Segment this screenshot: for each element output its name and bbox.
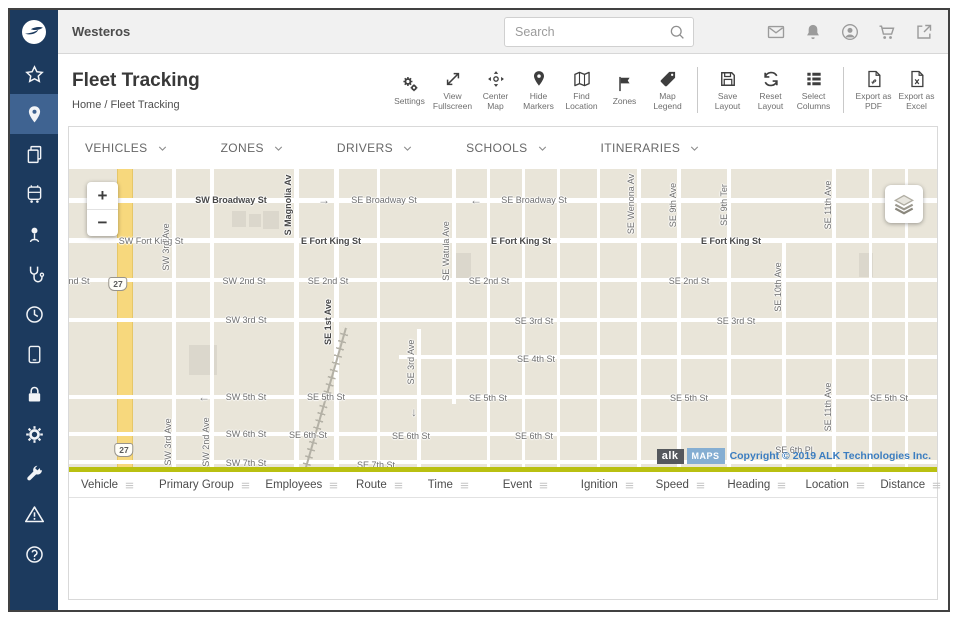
street-label: SE Wenona Av <box>626 174 636 234</box>
topbar: Westeros <box>58 10 948 54</box>
street-label: SE 3rd St <box>717 316 756 326</box>
tool-label: Zones <box>613 97 637 107</box>
street-label: SE 3rd St <box>515 316 554 326</box>
column-menu-icon <box>776 480 787 491</box>
column-menu-icon <box>328 480 339 491</box>
street-label: SE 3rd Ave <box>406 340 416 385</box>
route-shield: 27 <box>114 443 133 457</box>
map-street-horizontal <box>399 355 937 359</box>
column-header-time[interactable]: Time <box>416 479 491 491</box>
page-titles: Fleet Tracking Home / Fleet Tracking <box>72 70 200 111</box>
flag-icon <box>615 74 635 94</box>
tool-label: Map Legend <box>646 92 689 112</box>
account-button[interactable] <box>840 22 860 42</box>
column-menu-icon <box>538 480 549 491</box>
map-building <box>249 214 261 227</box>
column-header-label: Location <box>805 479 848 491</box>
street-label: SE 4th St <box>517 354 555 364</box>
sidebar-item-transit[interactable] <box>10 174 58 214</box>
tool-label: Center Map <box>474 92 517 112</box>
street-label: S Magnolia Av <box>283 175 293 236</box>
street-label: SW Fort King St <box>119 236 184 246</box>
filter-itineraries[interactable]: ITINERARIES <box>601 141 702 155</box>
column-menu-icon <box>393 480 404 491</box>
street-label: SE 6th St <box>515 431 553 441</box>
street-label: SE 11th Ave <box>823 181 833 230</box>
toolbar: SettingsView FullscreenCenter MapHide Ma… <box>388 67 938 113</box>
external-link-icon <box>914 22 934 42</box>
toolbar-divider <box>697 67 698 113</box>
falcon-logo-icon <box>19 17 49 47</box>
street-label: SW 2nd Ave <box>201 417 211 466</box>
column-header-label: Vehicle <box>81 479 118 491</box>
tool-label: Reset Layout <box>749 92 792 112</box>
filter-drivers[interactable]: DRIVERS <box>337 141 414 155</box>
column-header-heading[interactable]: Heading <box>715 479 793 491</box>
filter-zones[interactable]: ZONES <box>221 141 285 155</box>
tablet-icon <box>24 344 45 365</box>
street-label: SE Broadway St <box>351 195 417 205</box>
street-label: SW 2nd St <box>222 276 265 286</box>
street-label: SW 3rd St <box>225 315 266 325</box>
sidebar-item-help[interactable] <box>10 534 58 574</box>
map-attribution: alk MAPS Copyright © 2019 ALK Technologi… <box>657 448 931 464</box>
tool-select-columns[interactable]: Select Columns <box>792 69 835 112</box>
reset-icon <box>761 69 781 89</box>
content-card: VEHICLESZONESDRIVERSSCHOOLSITINERARIES +… <box>68 126 938 600</box>
help-icon <box>24 544 45 565</box>
street-label: SE Broadway St <box>501 195 567 205</box>
map-canvas[interactable]: + − alk MAPS Copyright © 2019 ALK Techno… <box>69 169 937 467</box>
tool-save-layout[interactable]: Save Layout <box>706 69 749 112</box>
column-menu-icon <box>459 480 470 491</box>
topbar-icons <box>766 22 934 42</box>
sidebar-item-lock[interactable] <box>10 374 58 414</box>
column-header-employees[interactable]: Employees <box>253 479 344 491</box>
transit-icon <box>24 184 45 205</box>
street-label: SE 1st Ave <box>323 299 333 345</box>
street-label: E Fort King St <box>701 236 761 246</box>
column-header-location[interactable]: Location <box>793 479 868 491</box>
lock-icon <box>24 384 45 405</box>
search-box <box>504 17 694 47</box>
stethoscope-icon <box>24 264 45 285</box>
sidebar-item-clock[interactable] <box>10 294 58 334</box>
sidebar-item-location-pin[interactable] <box>10 94 58 134</box>
tool-label: Settings <box>394 97 425 107</box>
street-label: SE 9th Ter <box>719 184 729 226</box>
column-header-vehicle[interactable]: Vehicle <box>69 479 147 491</box>
tool-center-map[interactable]: Center Map <box>474 69 517 112</box>
filter-bar: VEHICLESZONESDRIVERSSCHOOLSITINERARIES <box>69 127 937 169</box>
tool-hide-markers[interactable]: Hide Markers <box>517 69 560 112</box>
map-street-horizontal <box>69 318 937 322</box>
sidebar-item-warning[interactable] <box>10 494 58 534</box>
wrench-icon <box>24 464 45 485</box>
sidebar <box>10 10 58 610</box>
mail-button[interactable] <box>766 22 786 42</box>
tool-map-legend[interactable]: Map Legend <box>646 69 689 112</box>
street-label: SW 3rd Ave <box>163 418 173 465</box>
column-header-label: Event <box>503 479 532 491</box>
column-menu-icon <box>855 480 866 491</box>
tool-label: Select Columns <box>792 92 835 112</box>
brand-logo[interactable] <box>10 10 58 54</box>
map-building <box>263 211 279 229</box>
bell-icon <box>803 22 823 42</box>
column-header-label: Heading <box>727 479 770 491</box>
column-menu-icon <box>240 480 251 491</box>
table-header-row: VehiclePrimary GroupEmployeesRouteTimeEv… <box>69 472 937 498</box>
save-icon <box>718 69 738 89</box>
street-label: SE 5th St <box>870 393 908 403</box>
search-icon <box>668 23 686 41</box>
map-fold-icon <box>572 69 592 89</box>
app-title: Westeros <box>72 24 130 39</box>
street-label: E Fort King St <box>301 236 361 246</box>
tool-find-location[interactable]: Find Location <box>560 69 603 112</box>
tag-icon <box>658 69 678 89</box>
sidebar-item-wrench[interactable] <box>10 454 58 494</box>
street-label: SE 2nd St <box>469 276 510 286</box>
clock-icon <box>24 304 45 325</box>
street-label: SE 6th St <box>289 430 327 440</box>
tool-label: Export as PDF <box>852 92 895 112</box>
documents-icon <box>24 144 45 165</box>
sidebar-item-person-marker[interactable] <box>10 214 58 254</box>
filter-label: ITINERARIES <box>601 141 681 155</box>
street-label: SE 5th St <box>469 393 507 403</box>
tool-reset-layout[interactable]: Reset Layout <box>749 69 792 112</box>
tool-label: Hide Markers <box>517 92 560 112</box>
column-header-route[interactable]: Route <box>344 479 416 491</box>
sidebar-item-star[interactable] <box>10 54 58 94</box>
street-label: SE 9th Ave <box>668 183 678 227</box>
column-header-label: Route <box>356 479 387 491</box>
tool-label: View Fullscreen <box>431 92 474 112</box>
alk-logo: alk <box>657 449 684 464</box>
chevron-down-icon <box>401 142 414 155</box>
star-icon <box>24 64 45 85</box>
map-arrow: ↓ <box>411 405 417 419</box>
tool-export-as-excel[interactable]: Export as Excel <box>895 69 938 112</box>
sidebar-item-stethoscope[interactable] <box>10 254 58 294</box>
street-label: SE 7th St <box>357 460 395 467</box>
filter-label: DRIVERS <box>337 141 393 155</box>
street-label: SE 2nd St <box>669 276 710 286</box>
chevron-down-icon <box>536 142 549 155</box>
street-label: SW 5th St <box>226 392 267 402</box>
street-label: SE 5th St <box>307 392 345 402</box>
tool-export-as-pdf[interactable]: Export as PDF <box>852 69 895 112</box>
street-label: SW Broadway St <box>195 195 267 205</box>
table-body-empty <box>69 498 937 599</box>
cart-icon <box>877 22 897 42</box>
column-header-label: Time <box>428 479 453 491</box>
map-copyright: Copyright © 2019 ALK Technologies Inc. <box>730 450 931 462</box>
map-street-horizontal <box>69 432 937 436</box>
filter-label: SCHOOLS <box>466 141 527 155</box>
map-zoom-control: + − <box>87 182 118 236</box>
map-arrow: ← <box>198 390 210 404</box>
tool-view-fullscreen[interactable]: View Fullscreen <box>431 69 474 112</box>
search-input[interactable] <box>504 17 694 47</box>
mail-icon <box>766 22 786 42</box>
columns-icon <box>804 69 824 89</box>
cart-button[interactable] <box>877 22 897 42</box>
street-label: SE Watula Ave <box>441 221 451 281</box>
street-label: SW 7th St <box>226 458 267 467</box>
warning-icon <box>24 504 45 525</box>
column-menu-icon <box>624 480 635 491</box>
center-map-icon <box>486 69 506 89</box>
route-shield: 27 <box>108 277 127 291</box>
street-label: SW 6th St <box>226 429 267 439</box>
toolbar-divider <box>843 67 844 113</box>
tool-zones[interactable]: Zones <box>603 74 646 107</box>
filter-vehicles[interactable]: VEHICLES <box>85 141 169 155</box>
external-link-button[interactable] <box>914 22 934 42</box>
alk-maps-logo: MAPS <box>687 448 725 464</box>
filter-label: ZONES <box>221 141 264 155</box>
page-header: Fleet Tracking Home / Fleet Tracking Set… <box>58 54 948 126</box>
column-header-event[interactable]: Event <box>491 479 569 491</box>
tool-label: Save Layout <box>706 92 749 112</box>
map-arrow: ← <box>470 193 482 207</box>
street-label: SE 2nd St <box>308 276 349 286</box>
column-header-speed[interactable]: Speed <box>644 479 716 491</box>
sidebar-nav <box>10 54 58 574</box>
sidebar-item-tablet[interactable] <box>10 334 58 374</box>
settings-icon <box>400 74 420 94</box>
street-label: E Fort King St <box>491 236 551 246</box>
bell-button[interactable] <box>803 22 823 42</box>
street-label: SW 3rd Ave <box>161 223 171 270</box>
tool-label: Find Location <box>560 92 603 112</box>
street-label: SE 5th St <box>670 393 708 403</box>
map-arrow: → <box>318 193 330 207</box>
street-label: SE 6th St <box>392 431 430 441</box>
main-area: Westeros Fleet Tracking Home / Fleet Tra… <box>58 10 948 610</box>
column-header-distance[interactable]: Distance <box>868 479 937 491</box>
zoom-in-button[interactable]: + <box>87 182 118 209</box>
sidebar-item-gear[interactable] <box>10 414 58 454</box>
column-header-label: Primary Group <box>159 479 234 491</box>
filter-schools[interactable]: SCHOOLS <box>466 141 548 155</box>
column-header-label: Speed <box>656 479 689 491</box>
chevron-down-icon <box>272 142 285 155</box>
marker-icon <box>529 69 549 89</box>
pdf-icon <box>864 69 884 89</box>
tool-settings[interactable]: Settings <box>388 74 431 107</box>
page-title: Fleet Tracking <box>72 70 200 92</box>
breadcrumb: Home / Fleet Tracking <box>72 99 200 111</box>
map-layers-button[interactable] <box>885 185 923 223</box>
gear-icon <box>24 424 45 445</box>
map-building <box>232 211 246 227</box>
column-header-label: Employees <box>265 479 322 491</box>
column-header-label: Distance <box>880 479 925 491</box>
sidebar-item-documents[interactable] <box>10 134 58 174</box>
column-menu-icon <box>695 480 706 491</box>
app-window: Westeros Fleet Tracking Home / Fleet Tra… <box>8 8 950 612</box>
chevron-down-icon <box>156 142 169 155</box>
street-label: SE 11th Ave <box>823 383 833 432</box>
column-menu-icon <box>124 480 135 491</box>
account-icon <box>840 22 860 42</box>
excel-icon <box>907 69 927 89</box>
street-label: SE 10th Ave <box>773 262 783 311</box>
fullscreen-icon <box>443 69 463 89</box>
zoom-out-button[interactable]: − <box>87 209 118 236</box>
person-marker-icon <box>24 224 45 245</box>
street-label: nd St <box>69 276 90 286</box>
column-menu-icon <box>931 480 942 491</box>
chevron-down-icon <box>688 142 701 155</box>
column-header-label: Ignition <box>581 479 618 491</box>
location-pin-icon <box>24 104 45 125</box>
column-header-ignition[interactable]: Ignition <box>569 479 644 491</box>
column-header-primary-group[interactable]: Primary Group <box>147 479 253 491</box>
map-street-vertical <box>452 169 456 404</box>
tool-label: Export as Excel <box>895 92 938 112</box>
layers-icon <box>891 191 917 217</box>
filter-label: VEHICLES <box>85 141 148 155</box>
